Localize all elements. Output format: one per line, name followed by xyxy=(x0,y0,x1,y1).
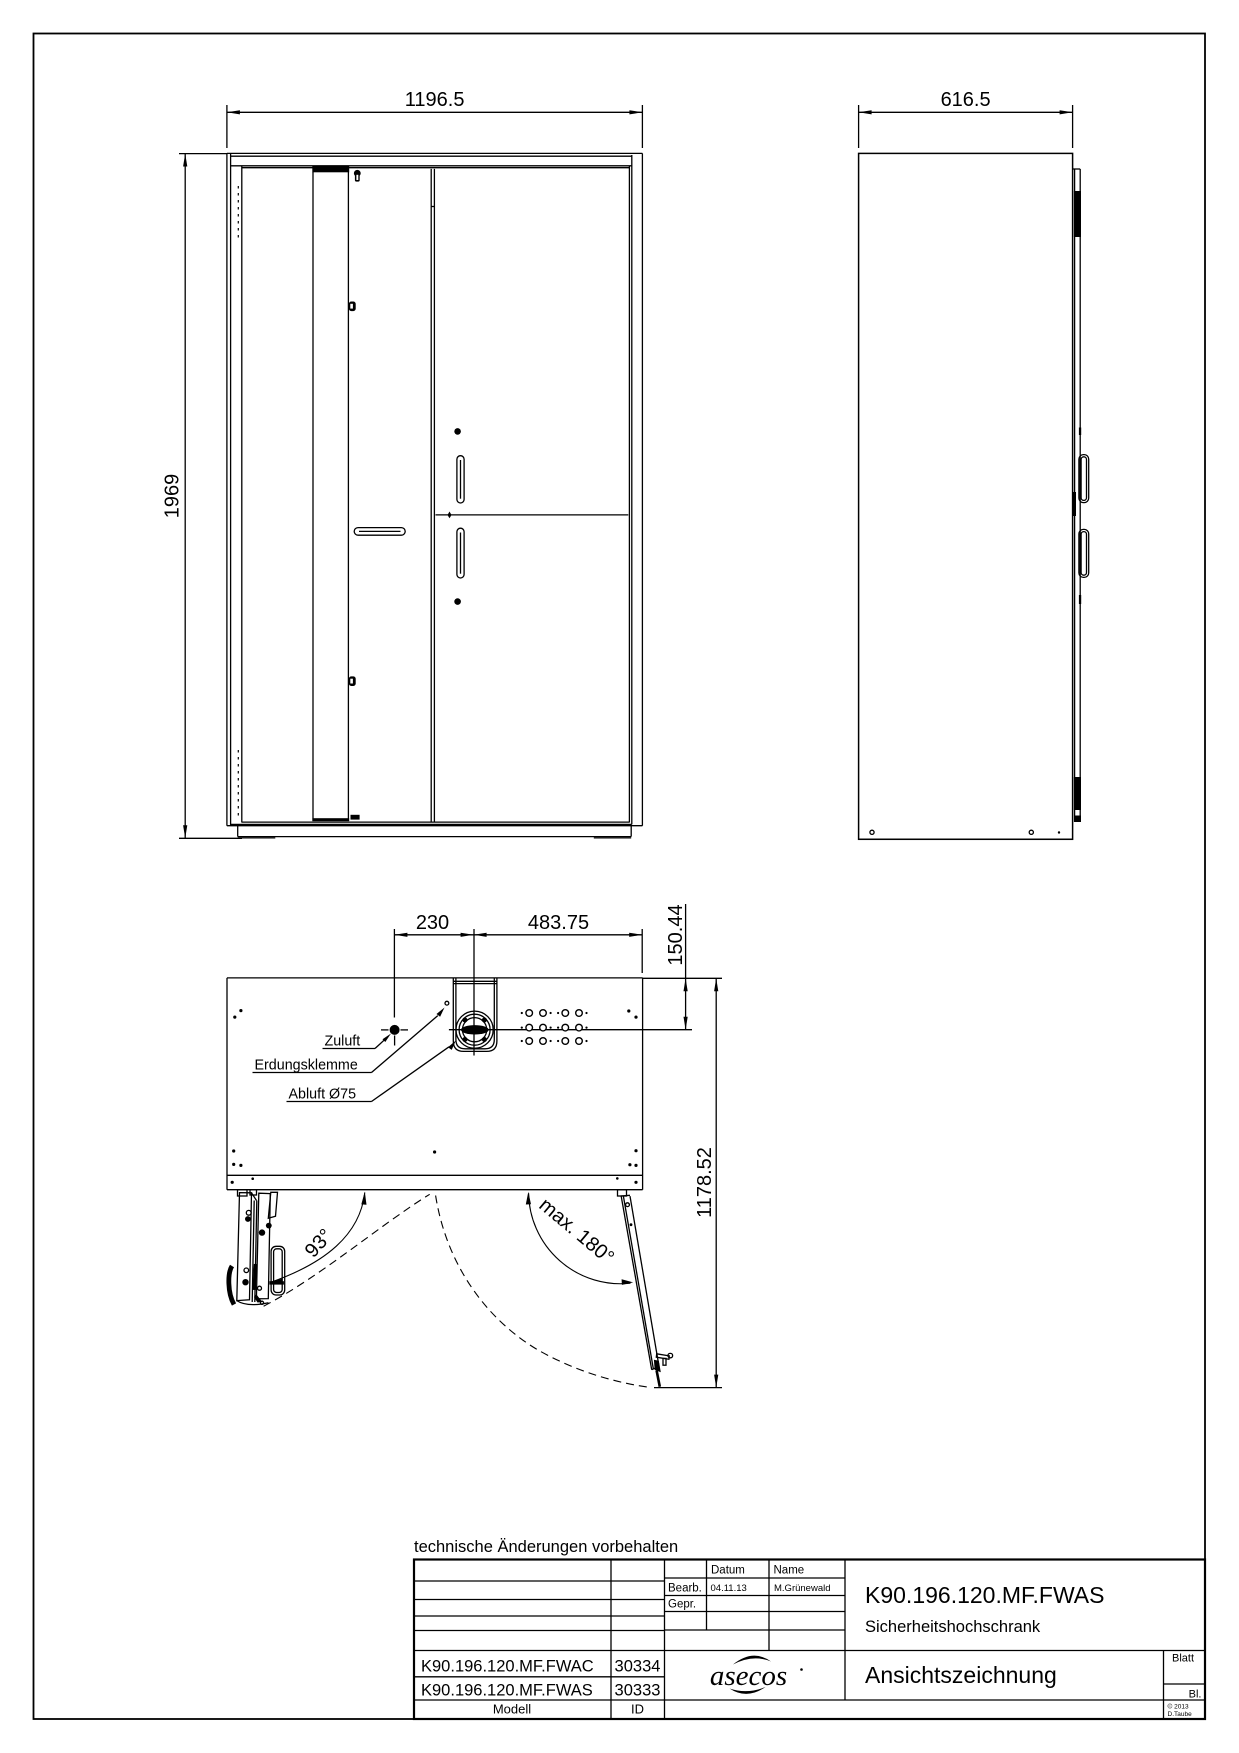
svg-text:© 2013: © 2013 xyxy=(1168,1703,1189,1711)
svg-text:1969: 1969 xyxy=(162,474,184,519)
svg-text:1178.52: 1178.52 xyxy=(694,1147,716,1218)
svg-text:Name: Name xyxy=(774,1565,805,1577)
svg-text:230: 230 xyxy=(416,912,449,934)
svg-text:technische Änderungen vorbehal: technische Änderungen vorbehalten xyxy=(414,1538,678,1556)
svg-text:04.11.13: 04.11.13 xyxy=(711,1583,747,1594)
svg-text:Abluft Ø75: Abluft Ø75 xyxy=(289,1087,357,1103)
svg-text:Ansichtszeichnung: Ansichtszeichnung xyxy=(865,1662,1057,1688)
svg-text:30334: 30334 xyxy=(615,1658,661,1676)
svg-text:Erdungsklemme: Erdungsklemme xyxy=(255,1058,358,1074)
svg-text:483.75: 483.75 xyxy=(528,912,589,934)
svg-text:Bearb.: Bearb. xyxy=(668,1583,702,1595)
svg-text:Datum: Datum xyxy=(711,1565,745,1577)
svg-text:Zuluft: Zuluft xyxy=(325,1034,361,1050)
svg-text:150.44: 150.44 xyxy=(665,904,687,965)
svg-text:D.Taube: D.Taube xyxy=(1168,1711,1193,1718)
svg-text:M.Grünewald: M.Grünewald xyxy=(774,1583,831,1594)
svg-text:Bl.: Bl. xyxy=(1189,1689,1202,1701)
svg-text:30333: 30333 xyxy=(615,1682,661,1700)
svg-text:1196.5: 1196.5 xyxy=(405,89,465,111)
svg-text:ID: ID xyxy=(631,1702,644,1717)
svg-text:K90.196.120.MF.FWAS: K90.196.120.MF.FWAS xyxy=(421,1682,593,1700)
svg-text:asecos: asecos xyxy=(710,1660,787,1692)
svg-text:616.5: 616.5 xyxy=(941,89,991,111)
svg-text:Sicherheitshochschrank: Sicherheitshochschrank xyxy=(865,1618,1041,1636)
svg-text:Gepr.: Gepr. xyxy=(668,1599,696,1611)
svg-text:K90.196.120.MF.FWAC: K90.196.120.MF.FWAC xyxy=(421,1658,594,1676)
svg-text:Modell: Modell xyxy=(493,1702,531,1717)
svg-text:Blatt: Blatt xyxy=(1172,1653,1194,1665)
svg-text:K90.196.120.MF.FWAS: K90.196.120.MF.FWAS xyxy=(865,1582,1104,1608)
